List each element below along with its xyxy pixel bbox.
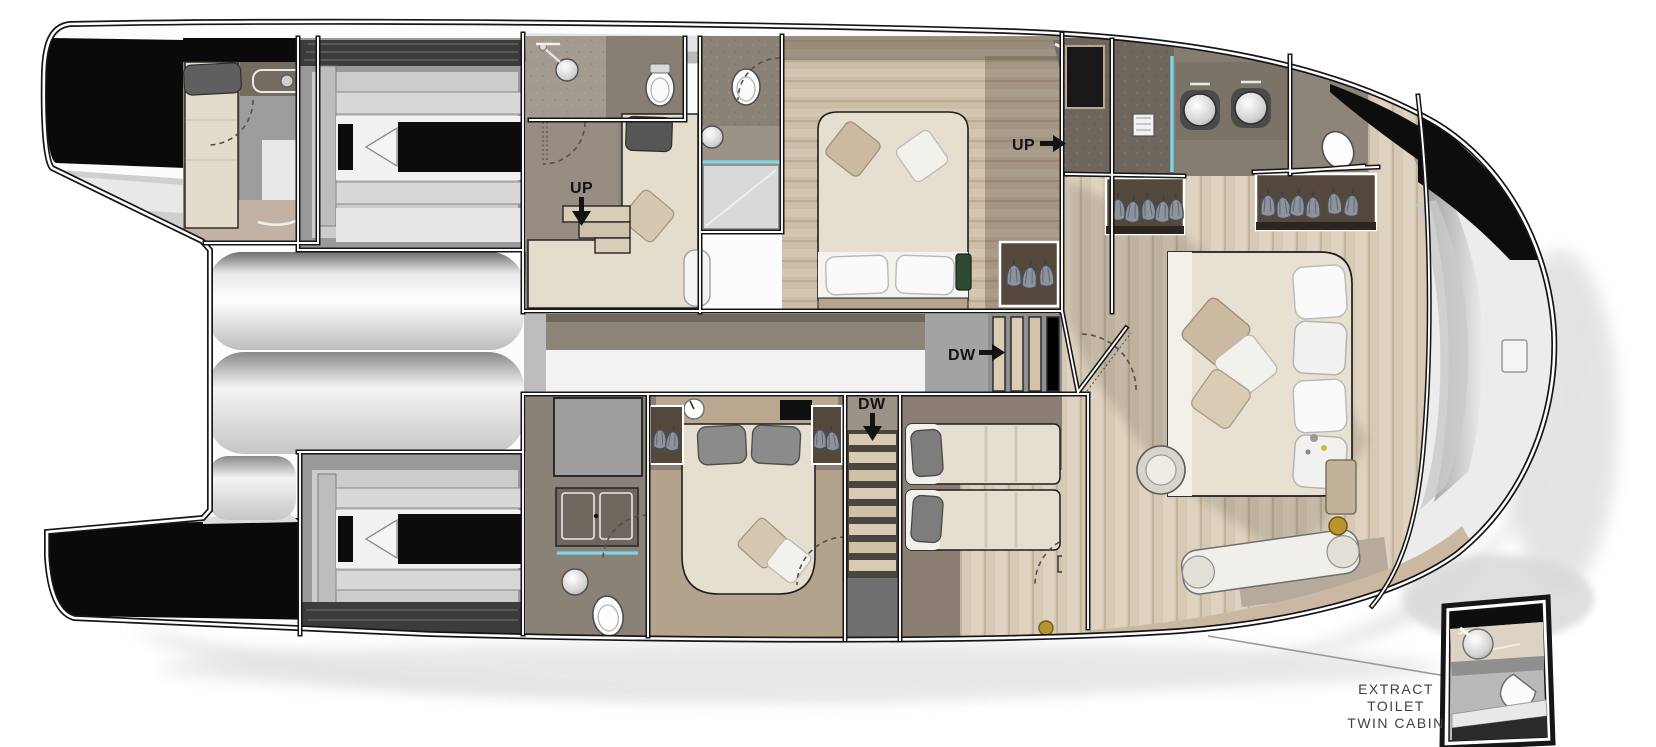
cabinet — [1066, 46, 1104, 108]
bow-step — [1502, 340, 1527, 372]
vip-bed — [818, 112, 971, 310]
wardrobe-icon-owner-left — [1106, 178, 1184, 234]
toilet-icon — [646, 64, 674, 106]
callout-caption: EXTRACT TOILET TWIN CABIN — [1347, 681, 1444, 731]
wardrobe-icon-owner-right — [1256, 174, 1376, 230]
clock-icon — [684, 399, 704, 419]
twin-bed-2 — [906, 490, 1060, 550]
engine-room-port — [298, 38, 523, 250]
wardrobe-icon-guest-right — [812, 406, 842, 464]
guest-bed — [682, 424, 815, 594]
dw-stairwell-text: DW — [858, 396, 886, 413]
tv-icon — [780, 400, 812, 420]
bathroom-starboard — [526, 396, 648, 638]
appliance-icon — [1133, 114, 1154, 136]
wardrobe-icon-vip — [1000, 242, 1058, 306]
stool-icon — [1329, 517, 1347, 535]
guest-cabin — [650, 396, 845, 640]
up-vip-text: UP — [1012, 137, 1035, 154]
wardrobe-icon-guest-left — [650, 406, 683, 464]
sink-icon — [562, 569, 588, 595]
owner-bed — [1168, 252, 1352, 496]
bathroom-fwd-port — [526, 36, 686, 120]
twin-bed-1 — [906, 424, 1060, 484]
brass-fitting-icon — [1039, 621, 1053, 635]
callout-line-3: TWIN CABIN — [1347, 715, 1444, 731]
callout-line-1: EXTRACT — [1358, 681, 1434, 697]
floor-plan-canvas: UP UP DW DW — [0, 0, 1656, 747]
callout-line-2: TOILET — [1367, 698, 1425, 714]
shower-room-mid — [701, 36, 780, 230]
engine-room-starboard — [298, 452, 523, 638]
armchair-icon — [1137, 446, 1185, 494]
champagne-icon — [956, 254, 971, 290]
inset-twin-toilet — [1442, 597, 1553, 747]
up-mid-text: UP — [570, 180, 593, 197]
dw-corridor-text: DW — [948, 347, 976, 364]
sink-icon — [701, 126, 723, 148]
cabin-mid — [526, 114, 710, 310]
